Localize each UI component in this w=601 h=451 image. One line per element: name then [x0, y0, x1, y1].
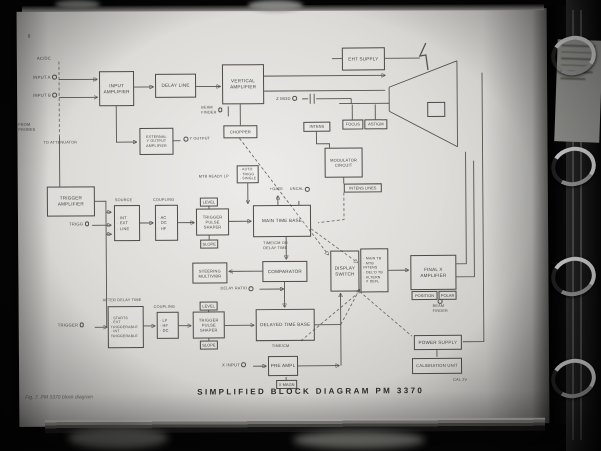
label-timebase-mtb: TIME/CM ORDELAY TIME — [263, 241, 288, 250]
label-text: Z MOD — [276, 96, 291, 101]
block-delay-line: DELAY LINE — [155, 74, 196, 98]
option-item: INT TRIGGERABLE — [111, 329, 143, 338]
label-uncal: UNCAL — [290, 187, 310, 192]
block-external-y-output-amplifier: EXTERNALY OUTPUTAMPLIFIER — [139, 128, 173, 155]
block-label: AMPLIFIER — [58, 201, 84, 207]
block-label: AMPLIFIER — [420, 272, 446, 278]
small-box-level-dtb: LEVEL — [200, 301, 218, 310]
small-box-focus: FOCUS — [342, 119, 363, 129]
option-block-trigger-coupling-mtb: ACDCHF — [155, 205, 178, 241]
block-label: POWER SUPPLY — [418, 339, 457, 345]
panel-jack-icon — [438, 299, 443, 304]
panel-jack-icon — [52, 93, 57, 98]
label-text: COUPLING — [153, 198, 174, 203]
label-z-mod: Z MOD — [276, 96, 297, 101]
panel-jack-icon — [305, 187, 310, 192]
label-text: X INPUT — [222, 362, 240, 367]
label-text: TO ATTENUATOR — [43, 140, 77, 145]
label-gate: +GATE — [270, 187, 283, 192]
label-y-output: Y OUTPUT — [183, 137, 210, 142]
block-modulator-circuit: MODULATORCIRCUIT — [325, 147, 363, 177]
option-block-display-modes: MAIN TBMTB INTENSDEL'D TBALTERNX DEFL — [360, 248, 388, 292]
small-box-intens-lines: INTENS LINES — [344, 183, 382, 192]
label-text: DELAY TIME — [263, 246, 288, 251]
option-block-trigger-source: INTEXTLINE — [114, 205, 140, 241]
block-label: EHT SUPPLY — [348, 56, 378, 62]
label-trigger-dtb: TRIGGER — [58, 322, 85, 327]
label-text: COUPLING — [154, 305, 175, 310]
panel-jack-icon — [80, 323, 85, 328]
label-timebase-dtb: TIME/CM — [272, 344, 289, 349]
label-x-input: X INPUT — [222, 362, 246, 367]
block-comparator: COMPARATOR — [262, 261, 307, 282]
block-label: CHOPPER — [230, 129, 251, 134]
foreground-shadow — [293, 431, 425, 449]
small-box-intens: INTENS — [303, 122, 330, 132]
option-item: EXT TRIGGERABLE — [111, 320, 143, 329]
option-item: HF — [158, 225, 166, 230]
option-item: LINE — [117, 226, 129, 231]
small-box-slope-dtb: SLOPE — [200, 340, 218, 349]
label-text: TRIGGER — [58, 322, 79, 327]
block-vertical-amplifier: VERTICALAMPLIFIER — [222, 64, 264, 104]
option-block-mtb-mode: AUTOTRIGGSINGLE — [237, 165, 259, 183]
label-input-a: INPUT A — [33, 75, 57, 80]
foreground-shadow — [68, 427, 168, 449]
label-beam-finder-x: BEAMFINDER — [433, 299, 448, 313]
option-item: MTB INTENS — [363, 261, 387, 270]
option-block-dtb-start-mode: STARTSEXT TRIGGERABLEINT TRIGGERABLE — [108, 306, 144, 348]
block-label: AMPLIFIER — [146, 144, 167, 149]
block-label: AMPLIFIER — [230, 84, 256, 90]
block-label: MAIN TIME BASE — [262, 218, 302, 224]
small-box-level-mtb: LEVEL — [200, 197, 218, 206]
label-text: TRIGG — [69, 221, 83, 226]
label-ac-dc: AC/DC — [37, 56, 51, 61]
label-text: AC/DC — [37, 56, 51, 61]
blurred-text-line — [560, 77, 585, 79]
label-text: TIME/CM — [272, 344, 289, 349]
block-trigger-amplifier: TRIGGERAMPLIFIER — [47, 186, 95, 216]
background-object — [248, 0, 303, 11]
block-label: SHAPER — [204, 224, 222, 229]
block-trigger-pulse-shaper-dtb: TRIGGERPULSESHAPER — [193, 311, 225, 338]
background-object — [55, 0, 100, 9]
manual-page: II — [17, 8, 550, 427]
label-text: CAL 2V — [453, 378, 467, 383]
panel-jack-icon — [292, 96, 297, 101]
label-text: MTB READY LP — [199, 174, 229, 179]
label-cal: CAL 2V — [453, 378, 467, 383]
option-item: SINGLE — [240, 176, 257, 181]
option-item: DC — [160, 328, 169, 333]
block-label: DELAY LINE — [161, 83, 189, 89]
label-source: SOURCE — [115, 198, 132, 203]
block-label: AMPLIFIER — [104, 89, 130, 95]
label-input-b: INPUT B — [33, 93, 57, 98]
block-display-switch: DISPLAYSWITCH — [330, 250, 359, 291]
block-label: SHAPER — [200, 327, 218, 332]
block-pre-ampl: PRE AMPL — [268, 356, 298, 376]
block-steering-multivibr: STEERINGMULTIVIBR — [192, 262, 227, 283]
label-text: SOURCE — [115, 198, 132, 203]
photo-of-manual-page: II — [0, 0, 601, 451]
label-text: PROBES — [18, 127, 35, 132]
diagram-title: SIMPLIFIED BLOCK DIAGRAM PM 3370 — [197, 386, 424, 397]
block-delayed-time-base: DELAYED TIME BASE — [256, 309, 315, 341]
panel-jack-icon — [241, 363, 246, 368]
label-text: +GATE — [270, 187, 283, 192]
block-label: CIRCUIT — [335, 163, 353, 168]
label-trigg: TRIGG — [69, 221, 89, 226]
panel-jack-icon — [183, 137, 188, 142]
panel-jack-icon — [85, 222, 90, 227]
block-calibration-unit: CALIBRATION UNIT — [412, 358, 462, 374]
panel-jack-icon — [218, 108, 223, 113]
label-delay-ratio: DELAY RATIO — [220, 286, 253, 291]
label-after-delay: AFTER DELAY TIME — [103, 298, 142, 303]
label-text: INPUT B — [33, 93, 51, 98]
label-text: FINDER — [433, 308, 448, 313]
block-trigger-pulse-shaper-mtb: TRIGGERPULSESHAPER — [196, 208, 229, 235]
label-text: UNCAL — [290, 187, 304, 192]
block-label: DELAYED TIME BASE — [260, 322, 310, 328]
label-text: Y OUTPUT — [189, 137, 210, 142]
block-chopper: CHOPPER — [223, 125, 257, 138]
label-mtb-ready: MTB READY LP — [199, 174, 229, 179]
label-text: FINDER — [201, 110, 216, 115]
block-eht-supply: EHT SUPPLY — [342, 47, 385, 70]
high-voltage-bolt-icon — [420, 43, 428, 70]
panel-jack-icon — [249, 286, 254, 291]
label-to-attenuator: TO ATTENUATOR — [43, 140, 77, 145]
label-from-probes: FROMPROBES — [18, 123, 35, 132]
block-label: SWITCH — [335, 271, 354, 277]
block-power-supply: POWER SUPPLY — [414, 335, 462, 350]
label-coupling-mtb: COUPLING — [153, 198, 174, 203]
figure-caption: Fig. 7. PM 3370 block diagram — [25, 394, 93, 400]
label-beam-finder-y: BEAMFINDER — [201, 105, 222, 114]
block-crt-connector — [427, 102, 445, 117]
label-text: DELAY RATIO — [220, 286, 247, 291]
block-final-x-amplifier: FINAL XAMPLIFIER — [410, 255, 456, 290]
label-text: INPUT A — [33, 75, 51, 80]
block-input-amplifier: INPUTAMPLIFIER — [99, 71, 134, 106]
option-item: X DEFL — [363, 279, 379, 284]
block-label: COMPARATOR — [268, 268, 302, 274]
block-label: PRE AMPL — [271, 363, 296, 369]
block-label: MULTIVIBR — [198, 273, 221, 278]
small-box-astigm: ASTIGM — [364, 119, 387, 129]
small-box-slope-mtb: SLOPE — [200, 239, 218, 248]
option-block-trigger-coupling-dtb: LFHFDC — [157, 312, 179, 339]
block-main-time-base: MAIN TIME BASE — [253, 205, 311, 237]
label-coupling-dtb: COUPLING — [154, 305, 175, 310]
panel-jack-icon — [52, 75, 57, 80]
block-label: CALIBRATION UNIT — [416, 363, 458, 369]
label-text: AFTER DELAY TIME — [103, 298, 142, 303]
